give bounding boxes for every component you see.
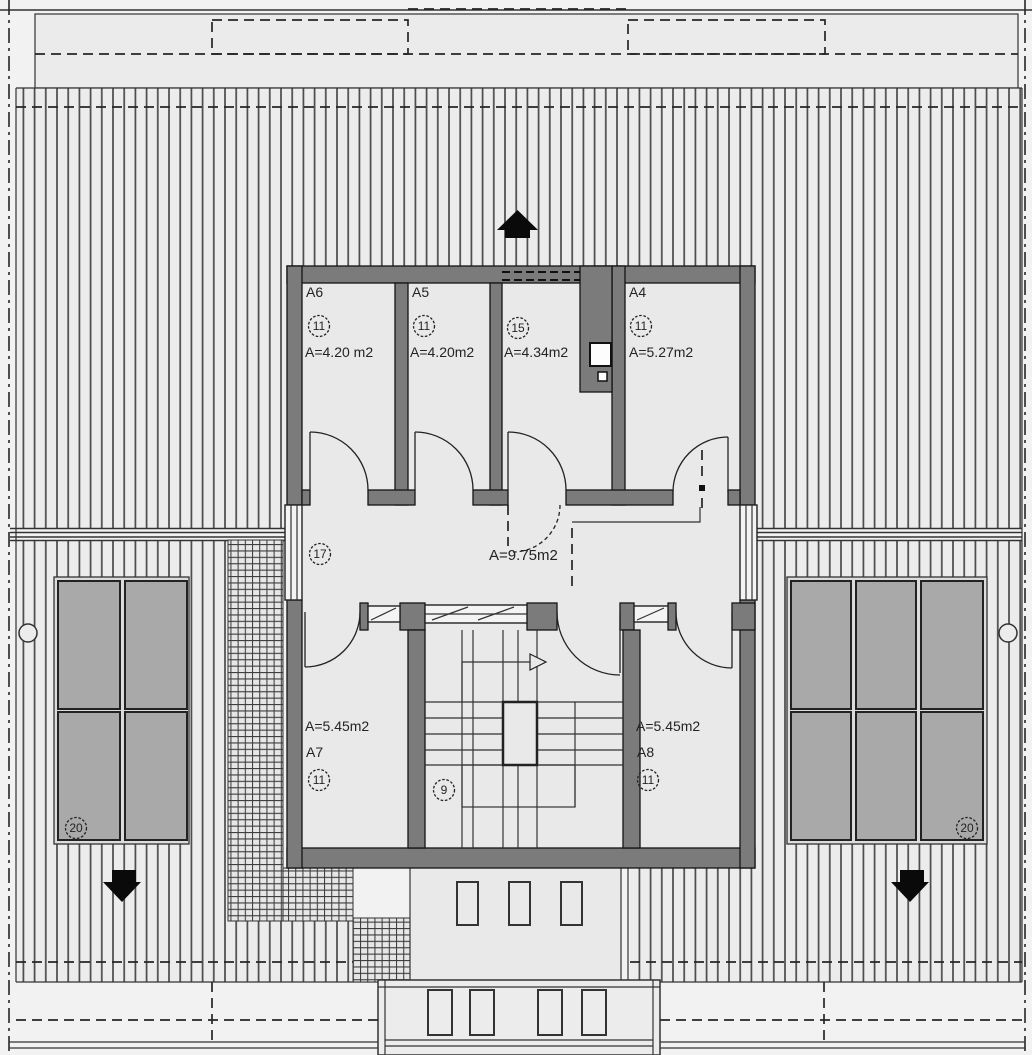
window-stair [425,605,527,623]
tag-stair: 9 [441,783,448,797]
wall-left-upper [287,266,302,505]
solar-panel [921,712,983,840]
wall-segment [368,490,415,505]
area-label-room15: A=4.34m2 [504,344,568,360]
roof-hatch-left-upper [16,266,287,528]
window-hall-right [740,505,757,600]
wall-segment [527,603,557,630]
solar-panel [791,712,851,840]
room-label-a8: A8 [637,744,654,760]
area-label-a5: A=4.20m2 [410,344,474,360]
tag-a7: 11 [313,773,326,787]
skylight [428,990,452,1035]
wall-partition-15-a4 [612,266,625,505]
solar-array-left: 20 [54,577,189,844]
chimney-flue-small [598,372,607,381]
window-a7 [368,606,400,622]
roof-hatch-right-bottom [630,868,755,982]
terrace-grid-corner [283,868,353,921]
entrance-porch [378,980,660,1055]
wall-segment [302,490,310,505]
roof-hatch-left-bottom [228,921,353,982]
roof-drain-right [999,624,1017,642]
wall-partition-a5-15 [490,283,502,505]
solar-tag-left: 20 [69,821,83,835]
wall-segment [728,490,740,505]
wall-left-lower [287,600,302,868]
wall-segment [360,603,368,630]
ridge-lines-left [10,529,287,541]
wall-segment [620,603,634,630]
wall-segment [732,603,755,630]
room-label-a7: A7 [306,744,323,760]
roof-hatch-right-upper [755,266,1022,528]
solar-panel [125,712,187,840]
solar-panel [921,581,983,709]
window-a8 [634,606,668,622]
terrace-grid-lower [353,918,410,982]
area-label-a7: A=5.45m2 [305,718,369,734]
wall-partition-a7-stair [408,630,425,848]
terrace-grid-strip [228,540,283,921]
wall-right-upper [740,266,755,505]
skylight [457,882,478,925]
solar-panel [856,712,916,840]
wall-partition-stair-a8 [623,630,640,848]
ridge-lines-right [755,529,1022,541]
roof-hatch-top [16,88,1022,266]
top-band [35,14,1018,88]
room-label-a6: A6 [306,284,323,300]
porch-outline [378,980,660,1055]
skylight [582,990,606,1035]
area-label-a8: A=5.45m2 [636,718,700,734]
room-label-a4: A4 [629,284,646,300]
solar-panel [58,712,120,840]
skylight [509,882,530,925]
floor-plan-drawing: 20 20 [0,0,1032,1055]
wall-bottom [287,848,755,868]
solar-panel [856,581,916,709]
area-label-hall: A=9.75m2 [489,547,558,564]
wall-right-lower [740,600,755,868]
tag-a4: 11 [635,319,648,333]
wall-partition-a6-a5 [395,283,408,505]
window-hall-left [285,505,302,600]
area-label-a6: A=4.20 m2 [305,344,373,360]
tag-a6: 11 [313,319,326,333]
skylight [561,882,582,925]
room-label-a5: A5 [412,284,429,300]
lower-terrace [410,868,628,980]
solar-panel [125,581,187,709]
solar-tag-right: 20 [960,821,974,835]
wall-segment [668,603,676,630]
wall-segment [566,490,673,505]
tag-room15: 15 [511,321,525,335]
building: A6 11 A=4.20 m2 A5 11 A=4.20m2 15 A=4.34… [285,266,757,868]
skylight [470,990,494,1035]
solar-panel [791,581,851,709]
tag-a5: 11 [418,319,431,333]
skylight [538,990,562,1035]
tag-a8: 11 [642,773,655,787]
area-label-a4: A=5.27m2 [629,344,693,360]
wall-segment [473,490,508,505]
tag-hall: 17 [313,547,327,561]
wall-segment [400,603,425,630]
solar-panel [58,581,120,709]
stair-void [503,702,537,765]
roof-drain-left [19,624,37,642]
solar-array-right: 20 [787,577,987,844]
chimney-flue [590,343,611,366]
